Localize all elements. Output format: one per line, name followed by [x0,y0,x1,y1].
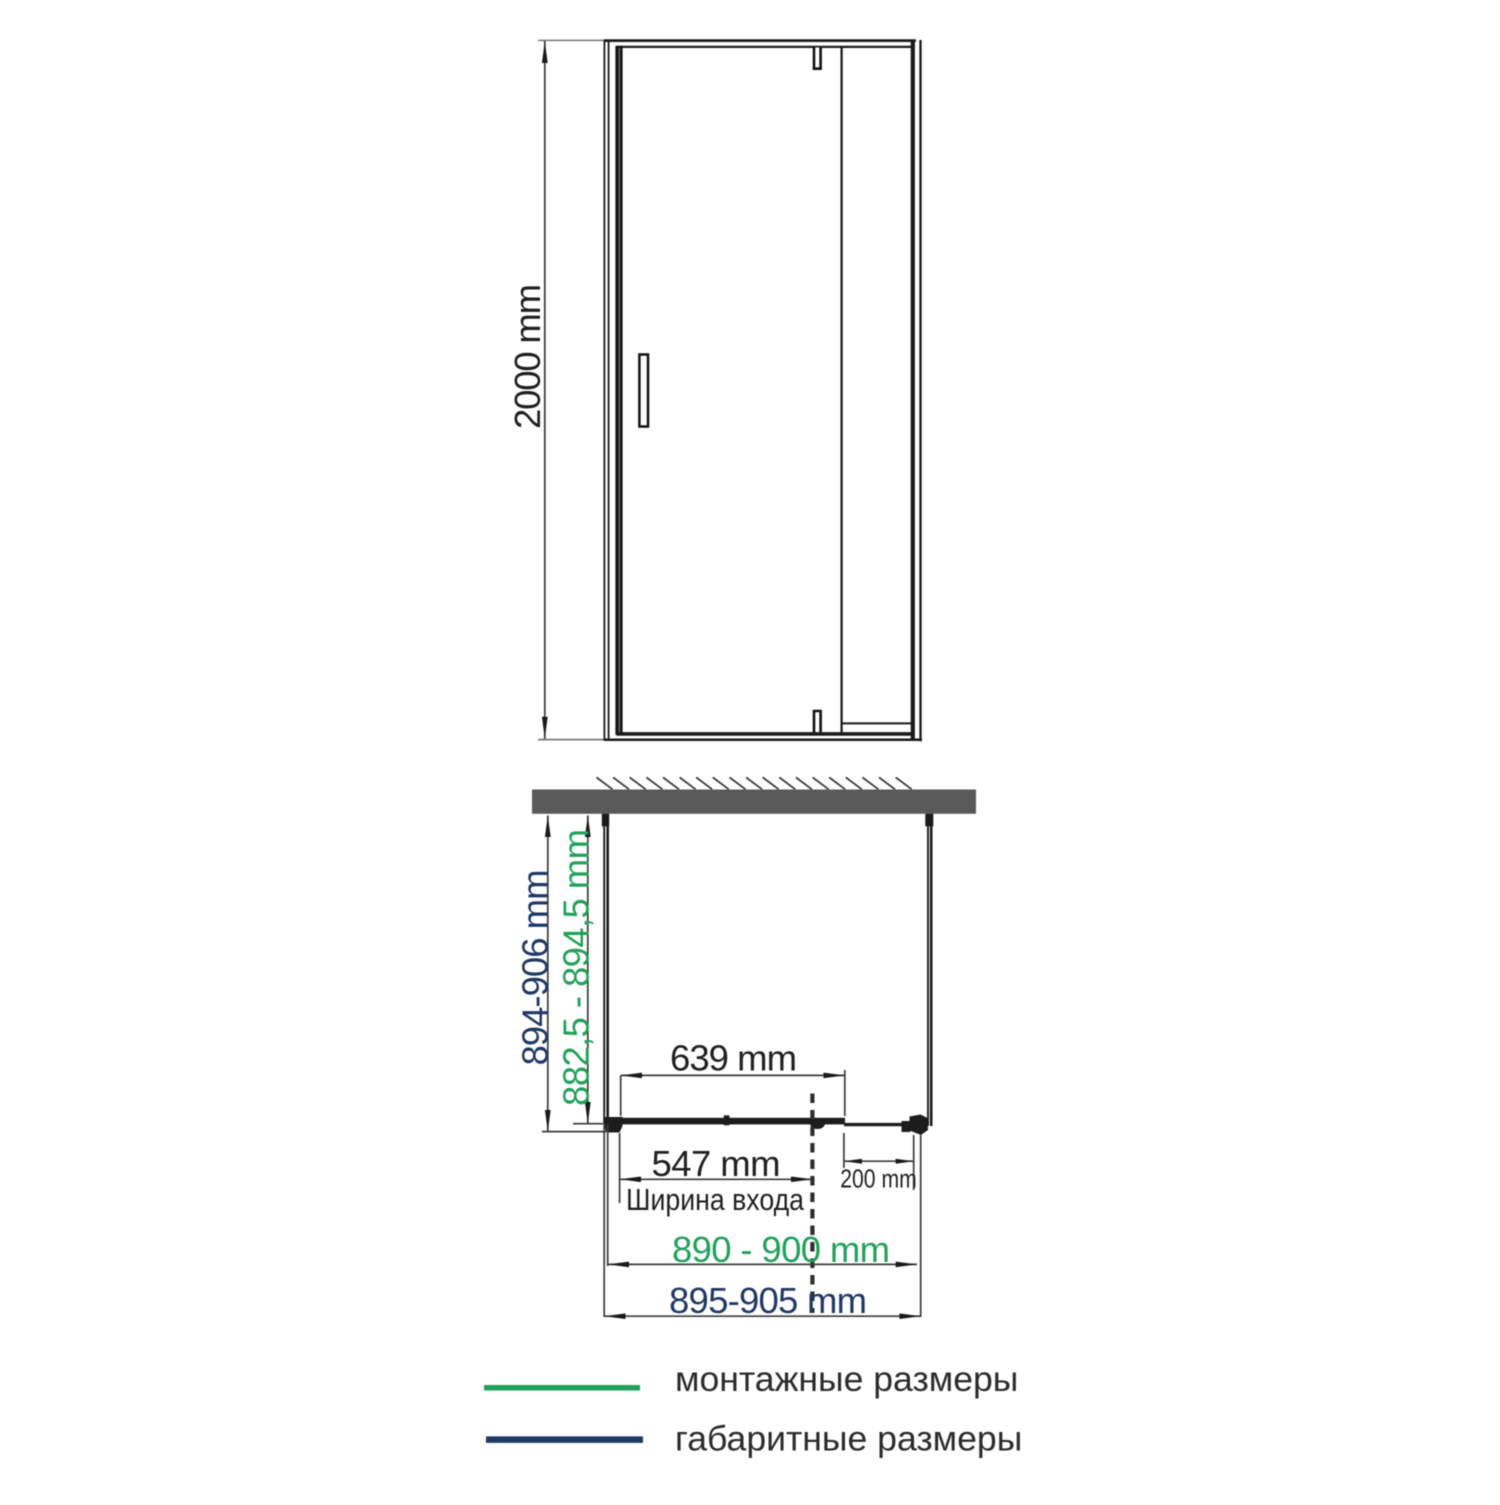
svg-text:894-906 mm: 894-906 mm [515,870,556,1066]
svg-text:882,5 - 894,5 mm: 882,5 - 894,5 mm [556,829,597,1106]
svg-text:895-905 mm: 895-905 mm [669,1280,867,1321]
svg-text:габаритные размеры: габаритные размеры [675,1419,1022,1459]
svg-text:200 mm: 200 mm [840,1164,917,1194]
svg-text:547 mm: 547 mm [652,1143,781,1184]
svg-text:монтажные размеры: монтажные размеры [675,1359,1018,1399]
svg-text:639 mm: 639 mm [670,1038,797,1079]
svg-text:2000 mm: 2000 mm [507,284,548,429]
svg-text:Ширина входа: Ширина входа [626,1182,805,1217]
svg-text:890 - 900 mm: 890 - 900 mm [672,1229,890,1270]
